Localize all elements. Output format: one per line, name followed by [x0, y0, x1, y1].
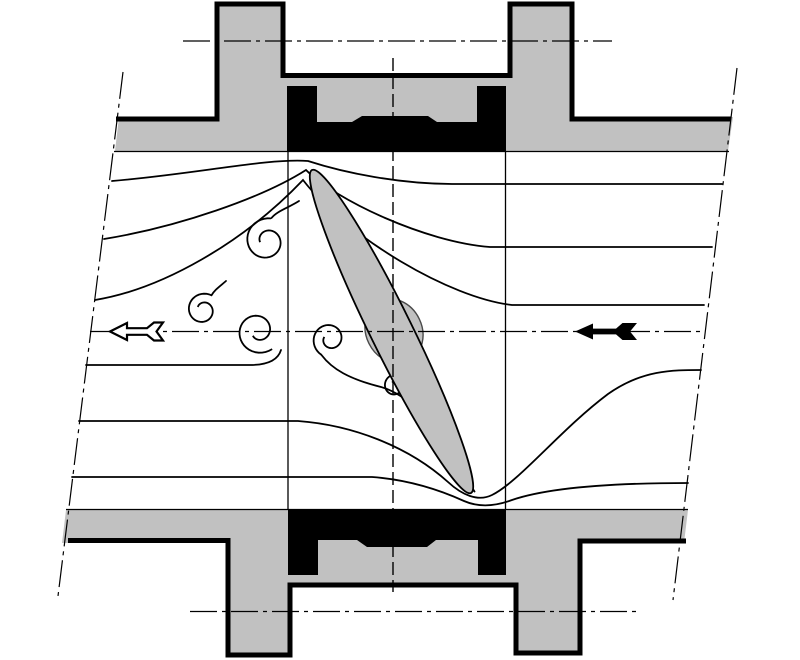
- wake-line-left: [86, 350, 281, 365]
- vortex-3: [240, 316, 273, 353]
- streamline-bottom-2: [72, 477, 688, 505]
- streamline-top-1: [112, 161, 722, 184]
- vortex-4: [314, 325, 342, 355]
- streamline-top-3: [95, 180, 704, 305]
- vortex-1-tail: [272, 201, 300, 218]
- butterfly-valve-flow-diagram: [0, 0, 800, 660]
- flow-arrow-outlet: [110, 323, 163, 341]
- vortex-2-tail: [212, 281, 227, 295]
- flow-arrow-inlet: [575, 323, 637, 340]
- vortex-1: [247, 218, 280, 257]
- diagram-canvas: [0, 0, 800, 660]
- vortex-2: [189, 294, 213, 322]
